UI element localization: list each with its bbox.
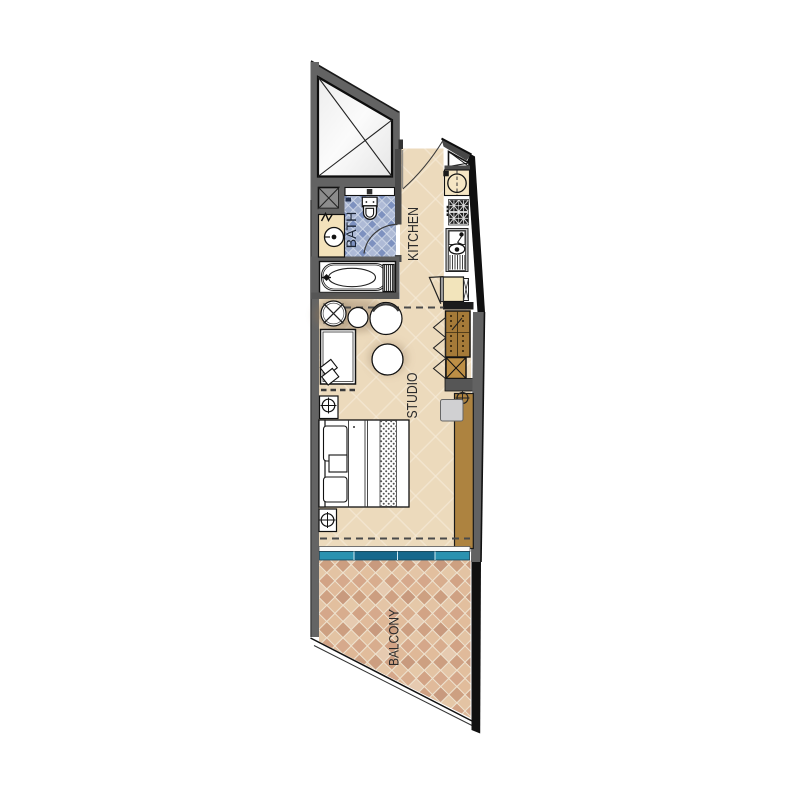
- svg-text:BATH: BATH: [343, 212, 359, 249]
- svg-text:STUDIO: STUDIO: [404, 373, 421, 419]
- svg-text:KITCHEN: KITCHEN: [405, 207, 422, 261]
- svg-text:BALCONY: BALCONY: [386, 608, 402, 666]
